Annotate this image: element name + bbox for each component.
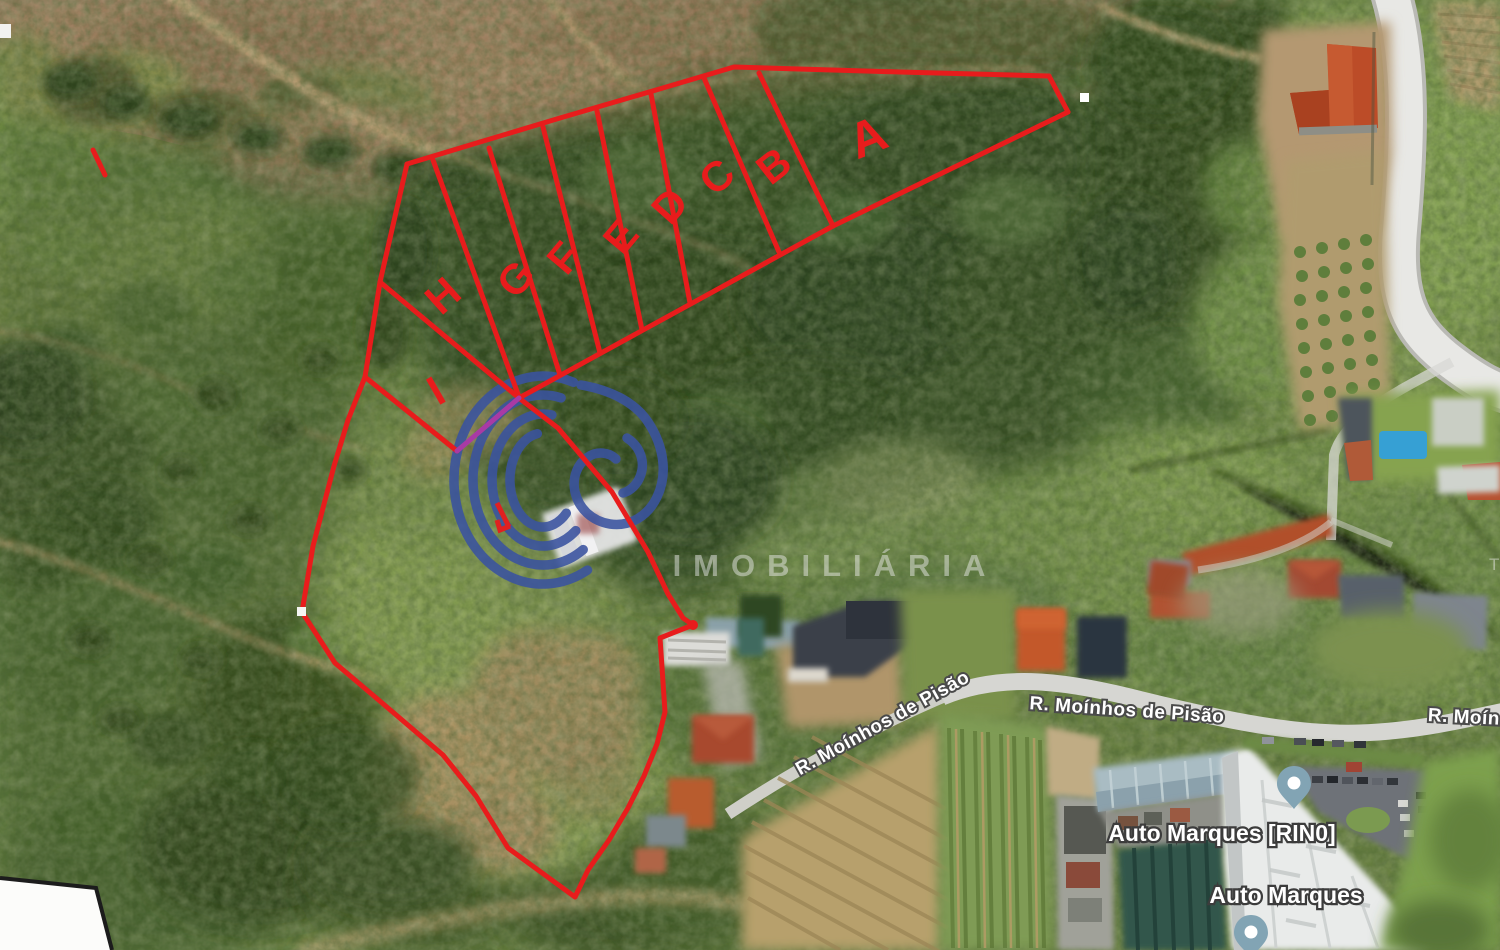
svg-text:R. Moín: R. Moín bbox=[1427, 705, 1500, 730]
svg-text:TM: TM bbox=[1489, 555, 1500, 574]
svg-text:Auto Marques: Auto Marques bbox=[1209, 882, 1362, 908]
svg-text:Auto Marques [RIN0]: Auto Marques [RIN0] bbox=[1108, 820, 1335, 846]
svg-text:IMOBILIÁRIA: IMOBILIÁRIA bbox=[673, 548, 998, 583]
